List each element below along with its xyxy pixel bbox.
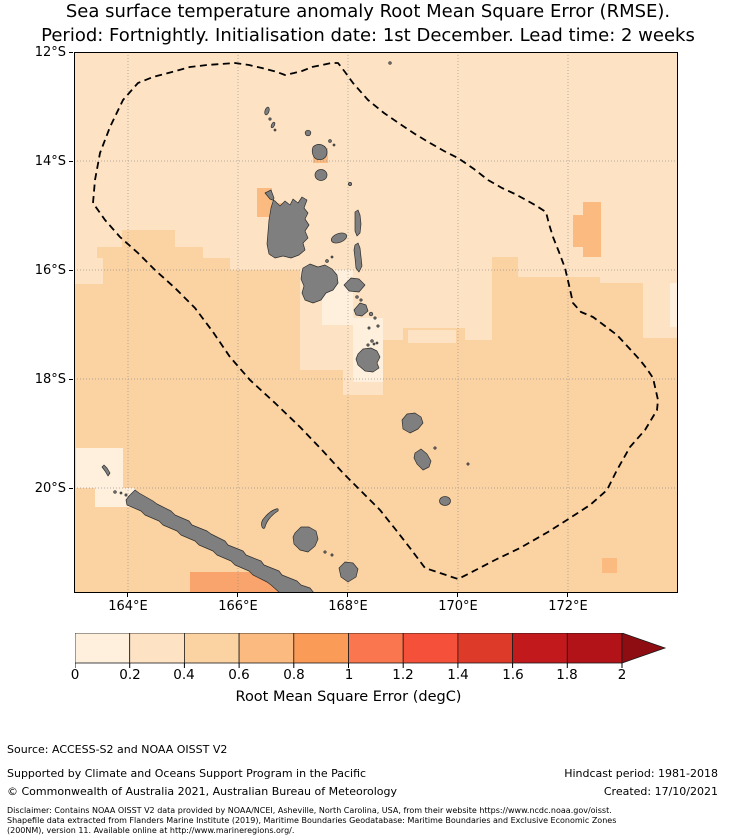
colorbar-tick-04: 0.4 — [162, 667, 206, 683]
disclaimer-line-3: (200NM), version 11. Available online at… — [7, 826, 733, 836]
axis-tick — [69, 52, 73, 53]
figure-sst-rmse-map: Sea surface temperature anomaly Root Mea… — [0, 0, 736, 839]
sea-patch — [76, 448, 123, 488]
sea-patch — [670, 283, 678, 327]
colorbar-segment — [75, 633, 130, 663]
colorbar-tick-2: 2 — [600, 667, 644, 683]
colorbar-tick-06: 0.6 — [217, 667, 261, 683]
axis-tick — [69, 161, 73, 162]
colorbar — [75, 633, 669, 669]
colorbar-tick-02: 0.2 — [108, 667, 152, 683]
lat-label-18s: 18°S — [24, 372, 66, 387]
hindcast-period-text: Hindcast period: 1981-2018 — [564, 767, 718, 780]
island-aneityum — [440, 497, 451, 506]
axis-tick — [127, 593, 128, 597]
lon-label-170e: 170°E — [434, 599, 482, 614]
colorbar-segment — [349, 633, 404, 663]
lon-label-164e: 164°E — [104, 599, 152, 614]
copyright-text: © Commonwealth of Australia 2021, Austra… — [7, 785, 397, 798]
lat-label-12s: 12°S — [24, 45, 66, 60]
axis-tick — [69, 270, 73, 271]
lon-label-172e: 172°E — [544, 599, 592, 614]
figure-title: Sea surface temperature anomaly Root Mea… — [0, 0, 736, 48]
colorbar-segment — [403, 633, 458, 663]
colorbar-extend-arrow — [622, 633, 665, 663]
source-text: Source: ACCESS-S2 and NOAA OISST V2 — [7, 743, 227, 756]
colorbar-segment — [239, 633, 294, 663]
title-line-1: Sea surface temperature anomaly Root Mea… — [0, 0, 736, 24]
sea-patch — [602, 558, 617, 573]
axis-tick — [237, 593, 238, 597]
colorbar-segment — [294, 633, 349, 663]
map-canvas — [74, 52, 678, 593]
lon-label-166e: 166°E — [214, 599, 262, 614]
sea-patch — [583, 202, 601, 257]
lat-label-20s: 20°S — [24, 481, 66, 496]
created-date-text: Created: 17/10/2021 — [604, 785, 718, 798]
axis-tick — [567, 593, 568, 597]
disclaimer-line-1: Disclaimer: Contains NOAA OISST V2 data … — [7, 806, 733, 816]
sea-patch — [408, 330, 456, 343]
supported-text: Supported by Climate and Oceans Support … — [7, 767, 366, 780]
colorbar-tick-18: 1.8 — [545, 667, 589, 683]
colorbar-tick-1: 1 — [327, 667, 371, 683]
colorbar-label: Root Mean Square Error (degC) — [75, 689, 622, 705]
lat-label-14s: 14°S — [24, 154, 66, 169]
colorbar-segment — [184, 633, 239, 663]
axis-tick — [347, 593, 348, 597]
island-aniwa — [434, 447, 436, 449]
colorbar-tick-12: 1.2 — [381, 667, 425, 683]
island-matthew — [467, 463, 469, 465]
colorbar-tick-0: 0 — [53, 667, 97, 683]
axis-tick — [457, 593, 458, 597]
colorbar-tick-14: 1.4 — [436, 667, 480, 683]
colorbar-segment — [567, 633, 622, 663]
axis-tick — [69, 379, 73, 380]
title-line-2: Period: Fortnightly. Initialisation date… — [0, 24, 736, 48]
colorbar-segment — [513, 633, 568, 663]
axis-tick — [69, 488, 73, 489]
colorbar-tick-16: 1.6 — [491, 667, 535, 683]
lat-label-16s: 16°S — [24, 263, 66, 278]
sea-patch — [573, 215, 583, 247]
colorbar-segment — [458, 633, 513, 663]
sea-patch — [74, 258, 103, 284]
lon-label-168e: 168°E — [324, 599, 372, 614]
disclaimer-line-2: Shapefile data extracted from Flanders M… — [7, 816, 733, 826]
colorbar-segment — [130, 633, 185, 663]
colorbar-tick-08: 0.8 — [272, 667, 316, 683]
